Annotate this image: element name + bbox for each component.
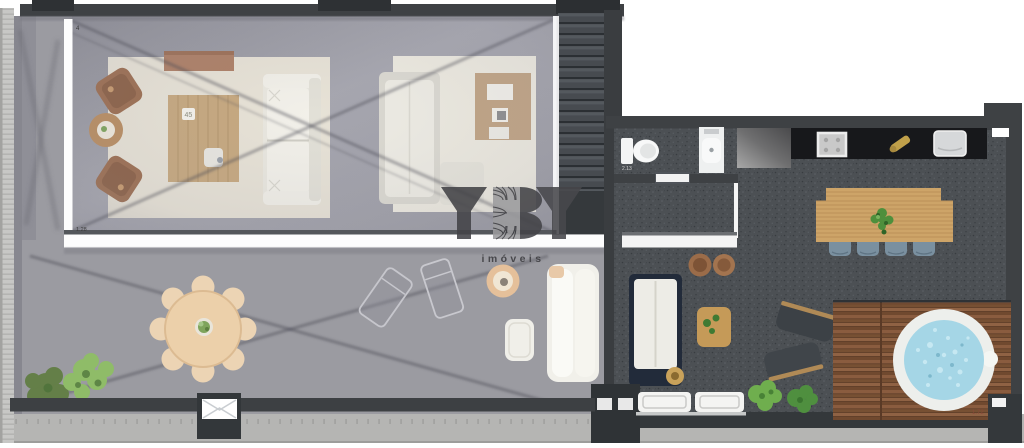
svg-text:1.72: 1.72 (972, 410, 984, 416)
svg-text:2.13: 2.13 (622, 166, 632, 172)
svg-text:1.28: 1.28 (76, 227, 87, 233)
svg-text:imóveis: imóveis (482, 253, 545, 265)
